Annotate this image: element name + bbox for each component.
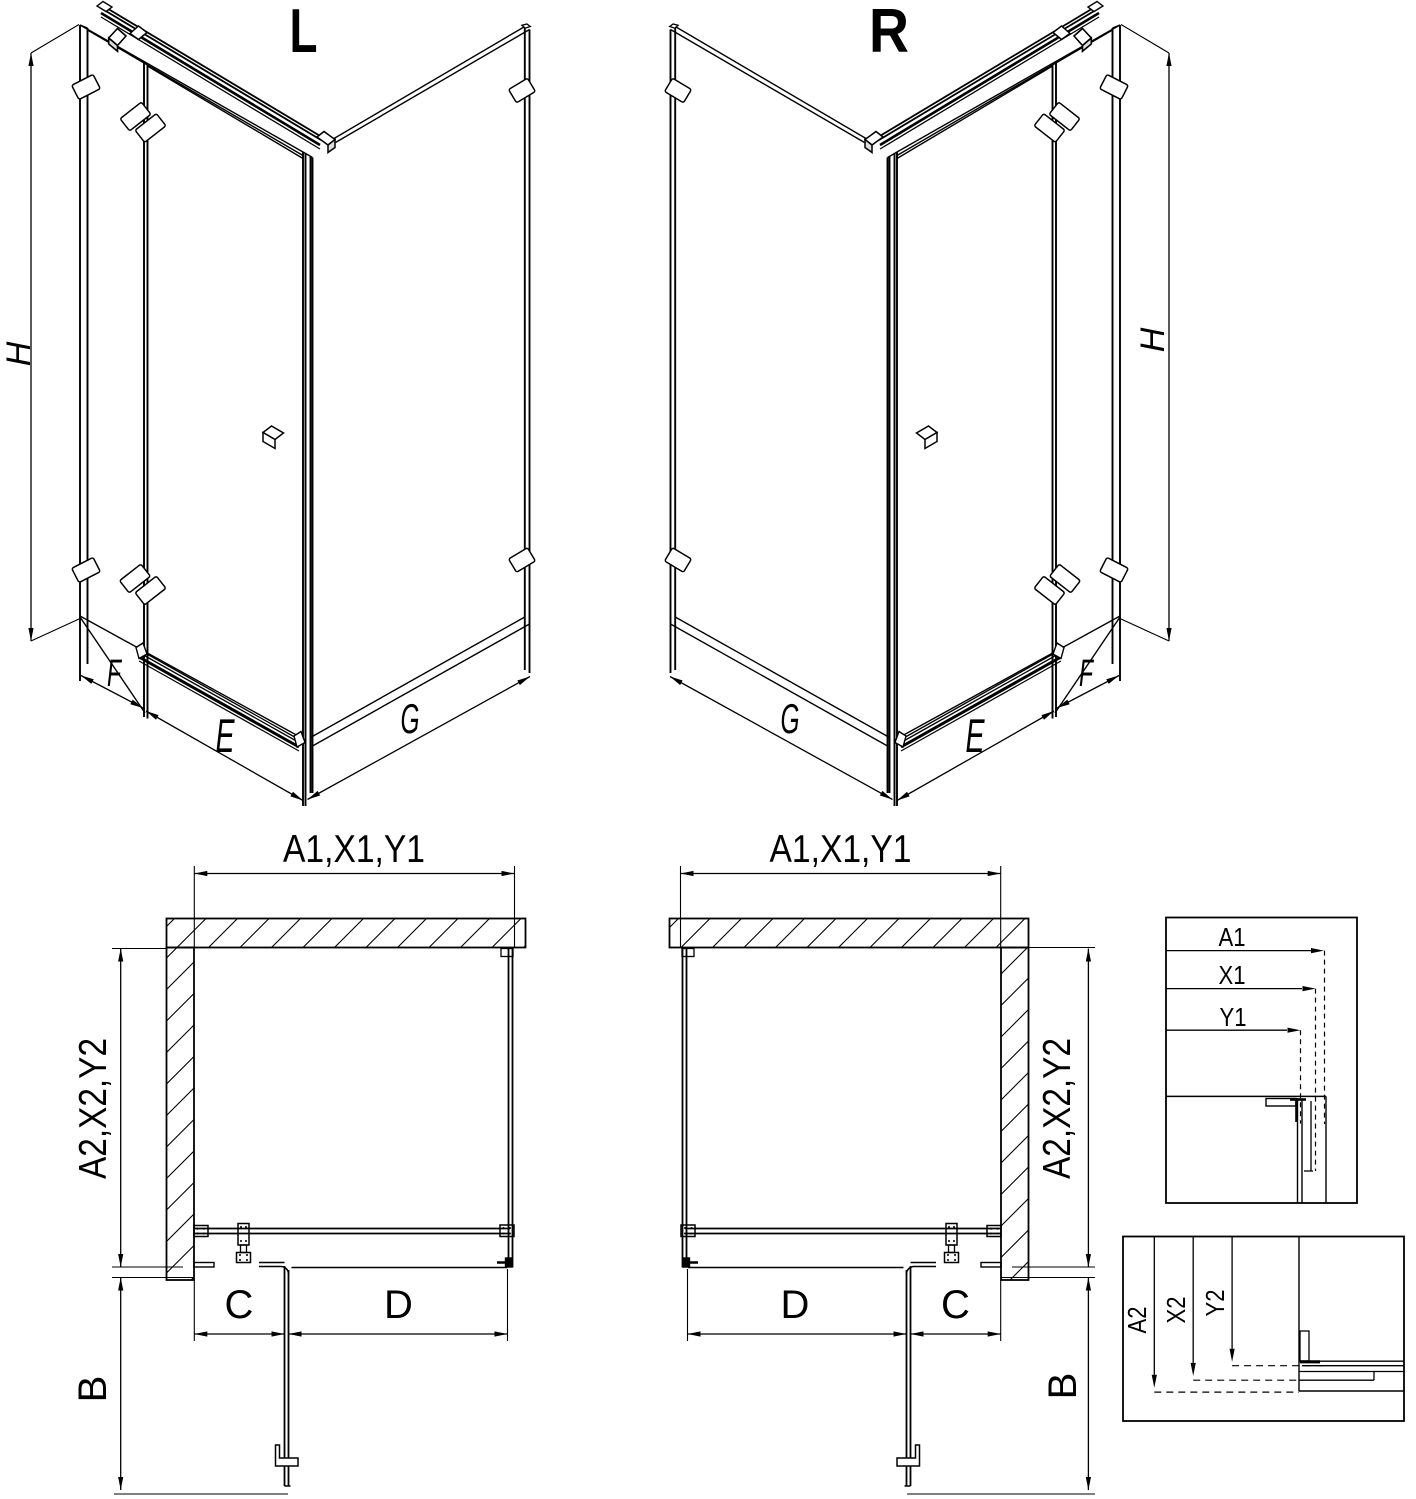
svg-text:E: E	[216, 709, 235, 762]
svg-text:X2: X2	[1161, 1297, 1191, 1324]
svg-text:X1: X1	[1219, 960, 1246, 990]
svg-text:D: D	[384, 1283, 413, 1327]
svg-text:H: H	[1134, 327, 1172, 352]
svg-text:Y1: Y1	[1220, 1002, 1247, 1032]
svg-text:A2,X2,Y2: A2,X2,Y2	[1036, 1038, 1079, 1179]
svg-text:A1,X1,Y1: A1,X1,Y1	[770, 828, 912, 871]
svg-text:E: E	[966, 709, 985, 762]
svg-text:L: L	[290, 0, 318, 66]
svg-text:C: C	[941, 1283, 970, 1327]
svg-text:A2,X2,Y2: A2,X2,Y2	[72, 1038, 115, 1179]
svg-text:C: C	[225, 1283, 254, 1327]
svg-text:D: D	[781, 1283, 810, 1327]
svg-text:F: F	[1079, 653, 1094, 695]
svg-text:A1,X1,Y1: A1,X1,Y1	[283, 828, 425, 871]
svg-text:B: B	[71, 1376, 115, 1403]
svg-text:A1: A1	[1219, 922, 1246, 952]
svg-text:R: R	[869, 0, 909, 66]
svg-text:G: G	[781, 695, 800, 742]
svg-text:H: H	[0, 341, 38, 366]
svg-text:F: F	[107, 653, 122, 695]
svg-text:A2: A2	[1122, 1307, 1152, 1334]
svg-text:Y2: Y2	[1200, 1290, 1230, 1317]
svg-text:B: B	[1041, 1373, 1085, 1400]
svg-text:G: G	[401, 695, 420, 742]
